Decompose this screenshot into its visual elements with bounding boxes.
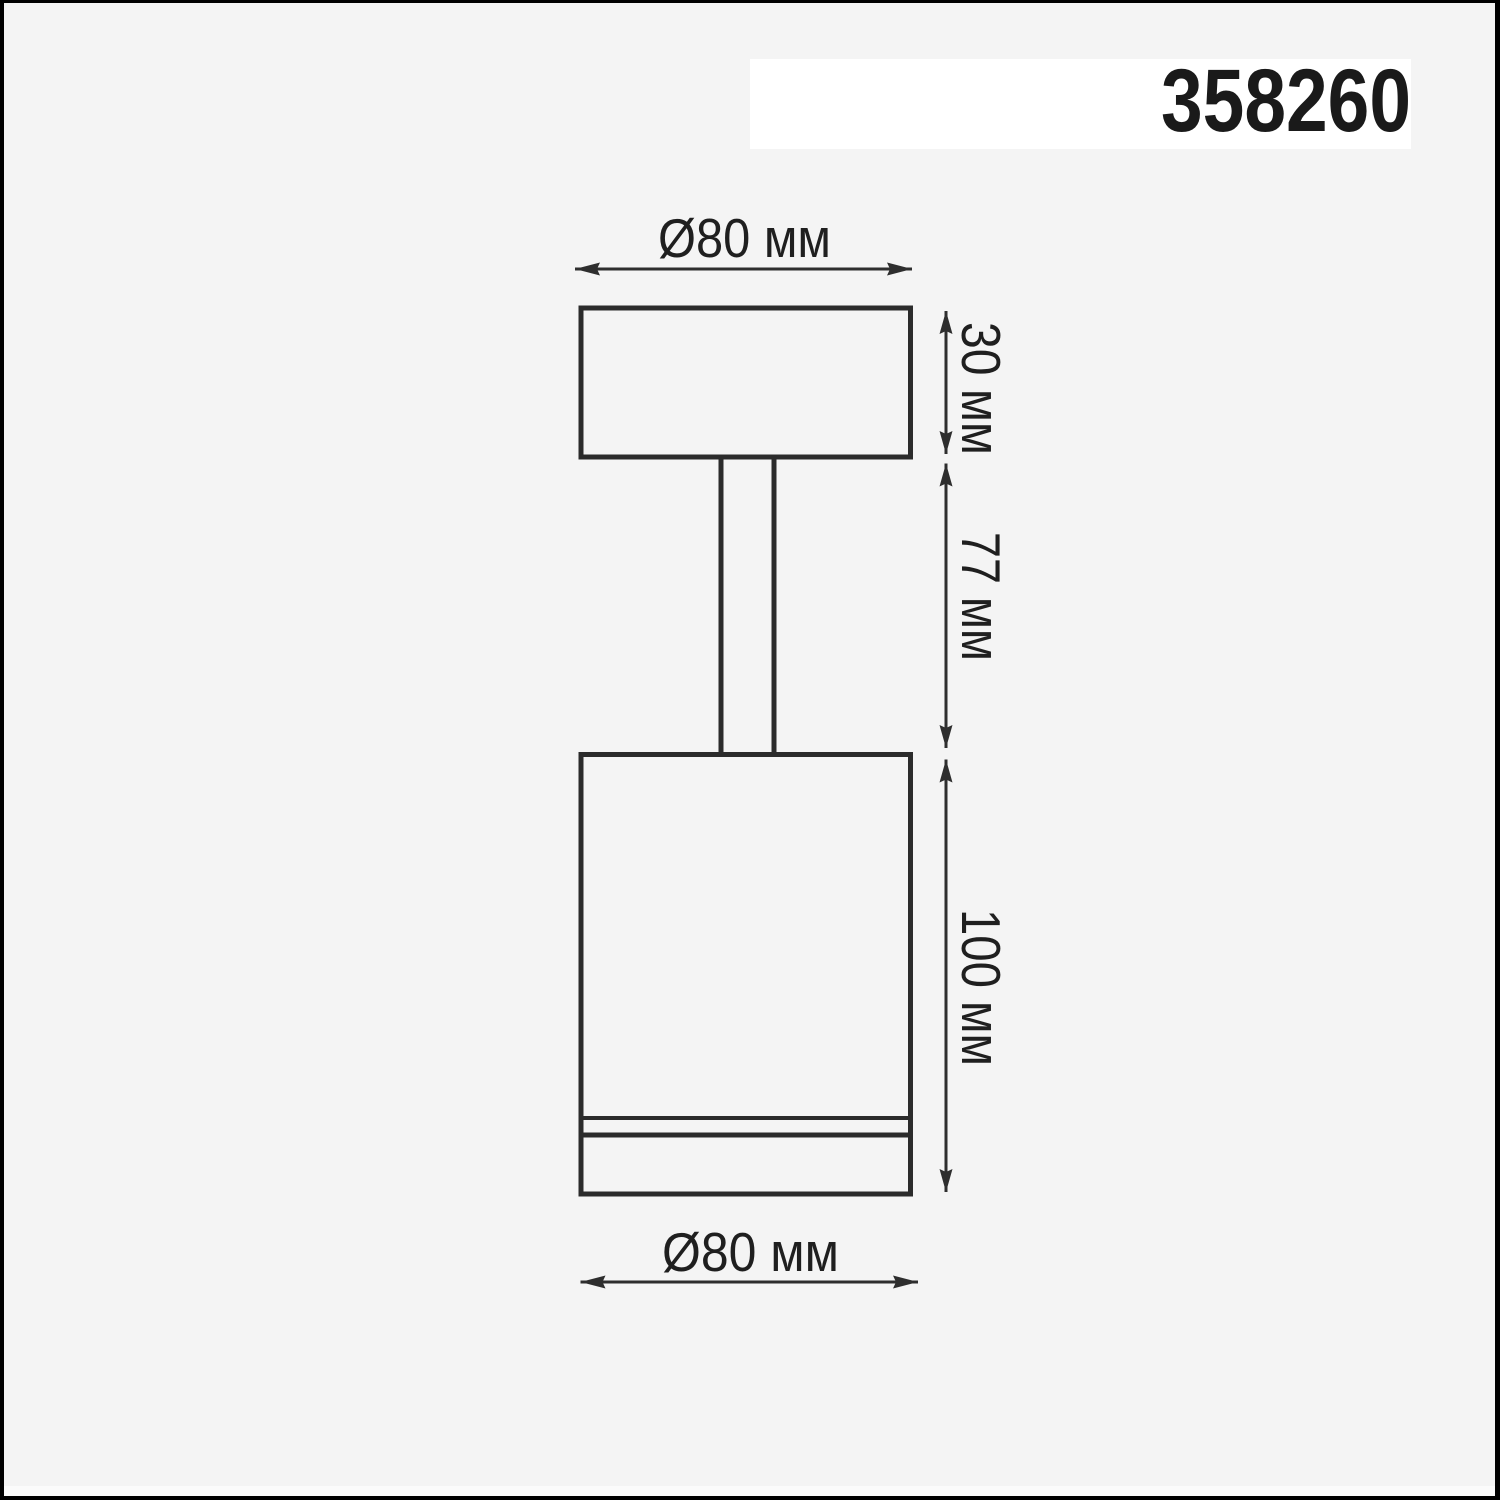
svg-text:Ø80 мм: Ø80 мм	[658, 207, 831, 269]
svg-text:Ø80 мм: Ø80 мм	[662, 1221, 839, 1283]
svg-text:77 мм: 77 мм	[950, 532, 1012, 661]
svg-text:100 мм: 100 мм	[950, 909, 1012, 1066]
svg-text:30 мм: 30 мм	[950, 322, 1012, 455]
svg-text:358260: 358260	[1161, 50, 1411, 150]
